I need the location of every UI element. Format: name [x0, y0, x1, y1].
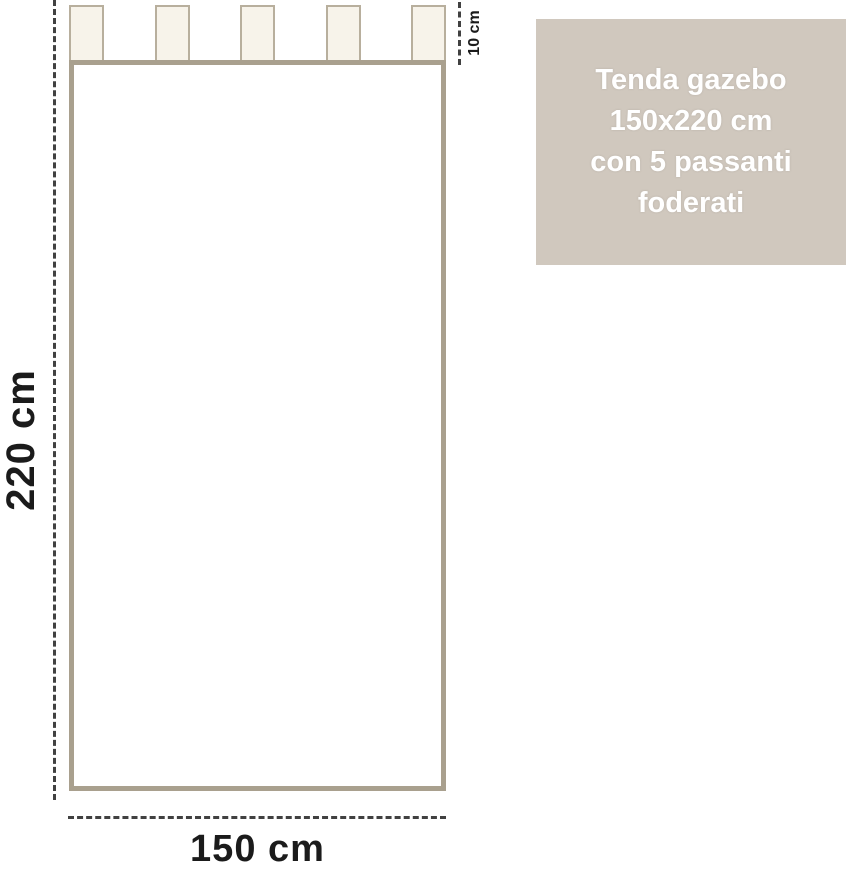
- curtain-tab: [411, 5, 446, 62]
- height-dimension-label: 220 cm: [0, 330, 43, 550]
- height-dimension-line: [53, 0, 56, 800]
- info-box: Tenda gazebo 150x220 cm con 5 passanti f…: [536, 19, 846, 265]
- tab-height-dimension-label: 10 cm: [466, 0, 484, 68]
- curtain-tab: [69, 5, 104, 62]
- info-box-line: foderati: [638, 183, 744, 224]
- info-box-line: con 5 passanti: [590, 142, 791, 183]
- curtain-tab: [155, 5, 190, 62]
- tab-height-dimension-line: [458, 2, 461, 65]
- curtain-tab: [240, 5, 275, 62]
- width-dimension-label: 150 cm: [69, 828, 446, 871]
- info-box-line: 150x220 cm: [610, 101, 773, 142]
- curtain-panel: [69, 60, 446, 791]
- width-dimension-line: [68, 816, 446, 819]
- product-diagram: 220 cm 10 cm 150 cm Tenda gazebo 150x220…: [0, 0, 846, 872]
- tabs-row: [69, 5, 446, 62]
- curtain-tab: [326, 5, 361, 62]
- info-box-line: Tenda gazebo: [595, 60, 786, 101]
